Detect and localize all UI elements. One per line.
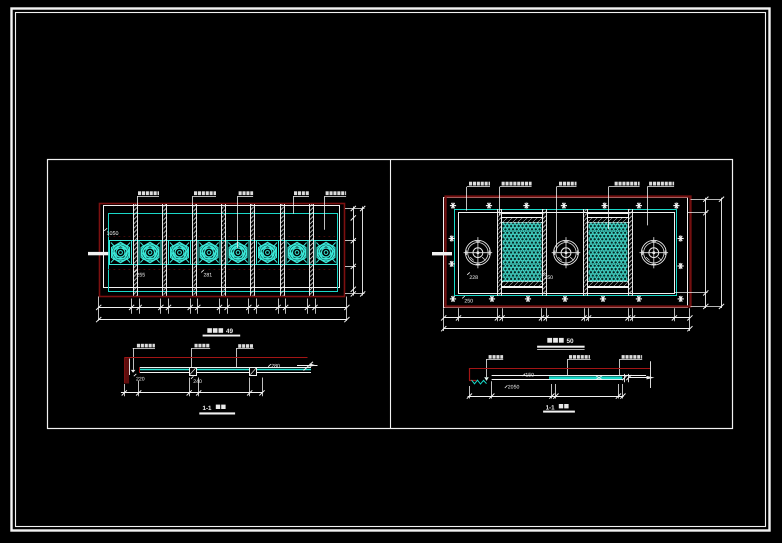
svg-text:150: 150 [525, 372, 534, 378]
svg-text:1-1: 1-1 [203, 405, 213, 412]
svg-text:1-1: 1-1 [546, 404, 556, 411]
svg-text:49: 49 [226, 328, 234, 335]
svg-text:2050: 2050 [508, 384, 520, 390]
svg-text:240: 240 [193, 379, 202, 385]
svg-text:250: 250 [544, 275, 553, 281]
svg-text:228: 228 [469, 275, 478, 281]
svg-text:255: 255 [137, 273, 146, 279]
svg-text:280: 280 [271, 363, 280, 369]
svg-text:281: 281 [204, 273, 213, 279]
svg-text:50: 50 [567, 338, 575, 345]
svg-text:220: 220 [136, 376, 145, 382]
svg-text:250: 250 [464, 299, 473, 305]
svg-text:1050: 1050 [107, 231, 119, 237]
